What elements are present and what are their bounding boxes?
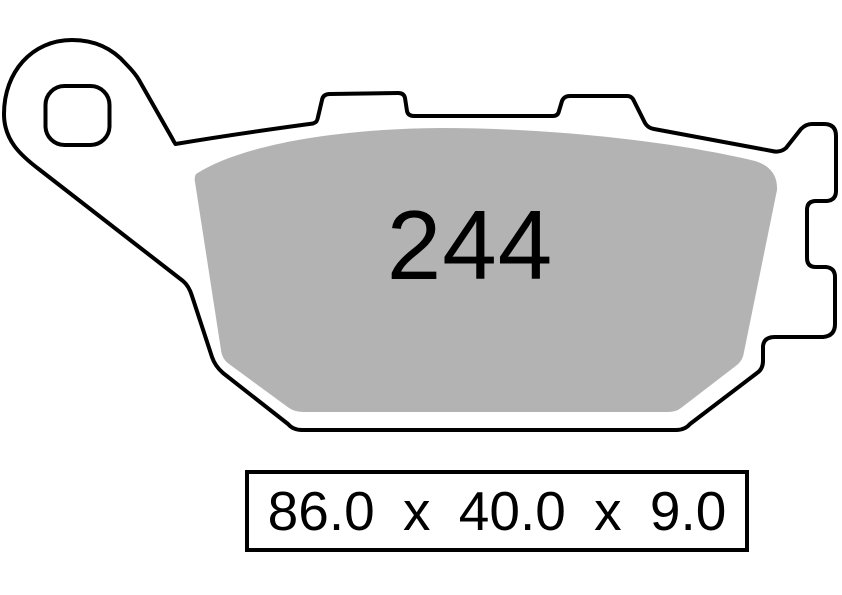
part-number-label: 244 [340, 196, 600, 296]
brake-pad-diagram: 244 86.0 x 40.0 x 9.0 [0, 0, 842, 595]
dimensions-label: 86.0 x 40.0 x 9.0 [268, 479, 727, 543]
dimensions-box: 86.0 x 40.0 x 9.0 [245, 470, 749, 552]
mounting-hole [46, 86, 110, 145]
